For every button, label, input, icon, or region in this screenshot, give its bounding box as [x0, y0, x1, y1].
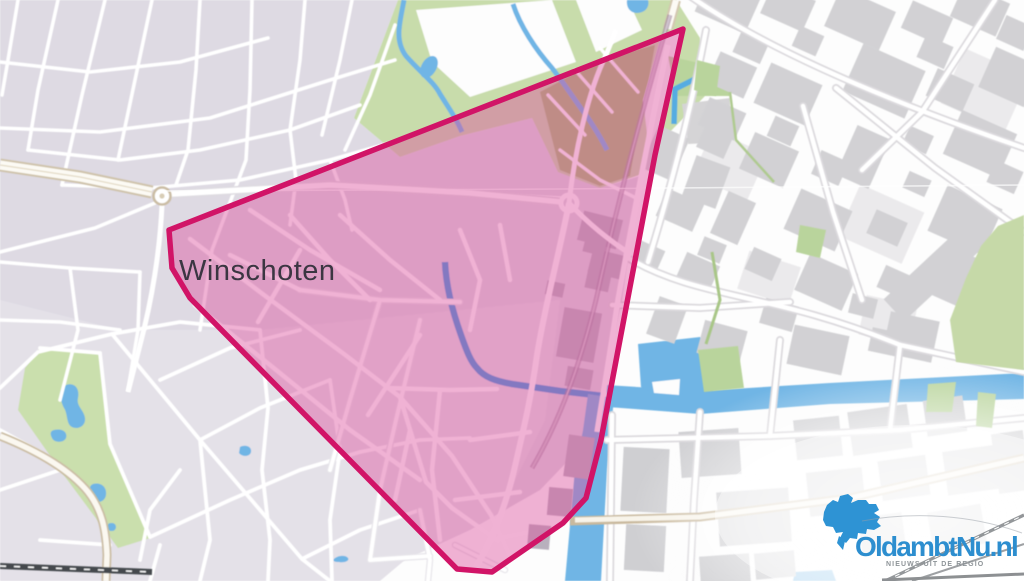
svg-text:Winschoten: Winschoten — [179, 255, 336, 287]
svg-text:NIEUWS UIT DE REGIO: NIEUWS UIT DE REGIO — [886, 561, 984, 568]
svg-text:OldambtNu.nl: OldambtNu.nl — [855, 531, 1017, 562]
